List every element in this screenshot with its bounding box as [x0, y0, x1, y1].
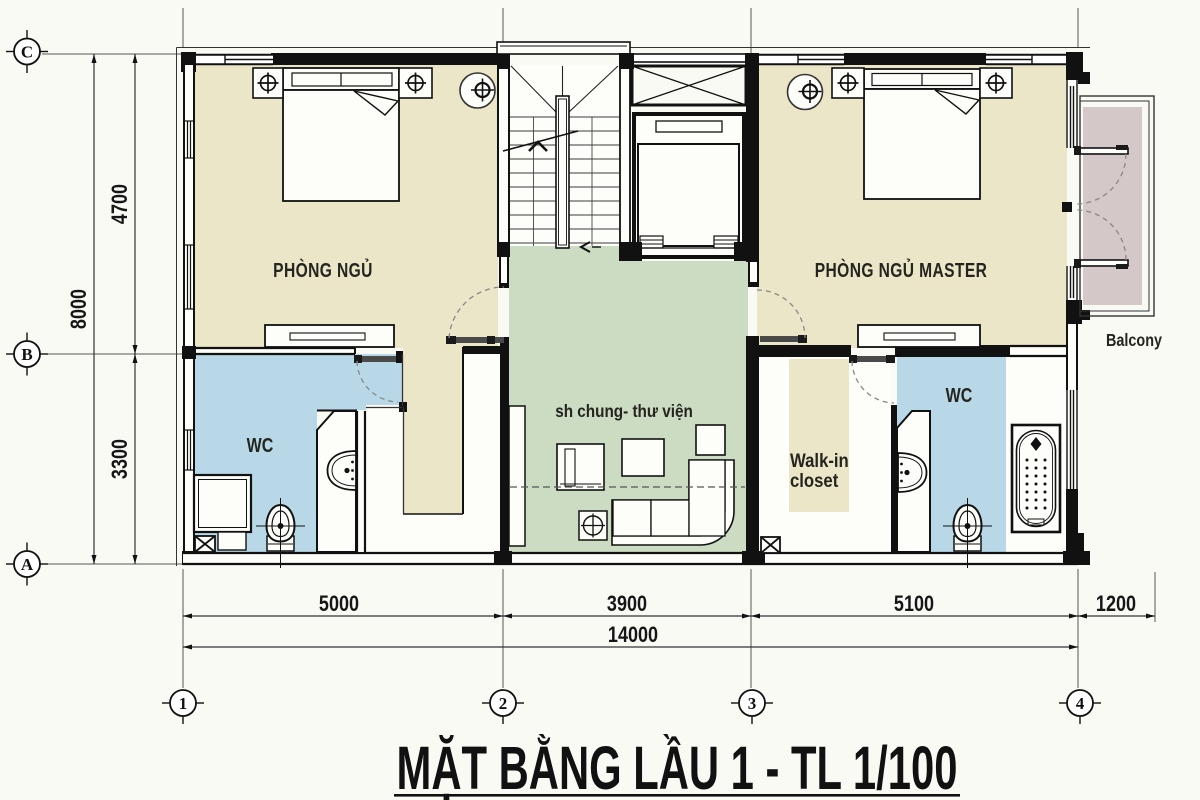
svg-text:3900: 3900 — [607, 592, 647, 616]
svg-text:1: 1 — [179, 694, 188, 713]
svg-text:2: 2 — [499, 694, 508, 713]
svg-text:PHÒNG NGỦ MASTER: PHÒNG NGỦ MASTER — [815, 258, 988, 281]
svg-text:1200: 1200 — [1096, 592, 1136, 616]
svg-text:C: C — [21, 43, 33, 62]
svg-text:5000: 5000 — [319, 592, 359, 616]
svg-text:4700: 4700 — [108, 184, 132, 224]
svg-text:8000: 8000 — [67, 289, 91, 329]
svg-text:PHÒNG NGỦ: PHÒNG NGỦ — [273, 258, 373, 281]
svg-text:Walk-in: Walk-in — [790, 450, 849, 471]
svg-text:5100: 5100 — [894, 592, 934, 616]
svg-text:WC: WC — [946, 384, 973, 406]
svg-text:MẶT BẰNG LẦU 1 - TL 1/100: MẶT BẰNG LẦU 1 - TL 1/100 — [397, 734, 958, 800]
svg-text:B: B — [21, 345, 32, 364]
svg-text:Balcony: Balcony — [1106, 331, 1162, 351]
svg-text:4: 4 — [1076, 694, 1085, 713]
svg-text:WC: WC — [247, 434, 274, 456]
svg-text:closet: closet — [790, 470, 838, 491]
svg-text:3: 3 — [748, 694, 757, 713]
svg-text:sh chung- thư viện: sh chung- thư viện — [555, 401, 693, 421]
svg-text:3300: 3300 — [108, 439, 132, 479]
svg-text:A: A — [21, 555, 34, 574]
svg-text:14000: 14000 — [608, 623, 658, 647]
